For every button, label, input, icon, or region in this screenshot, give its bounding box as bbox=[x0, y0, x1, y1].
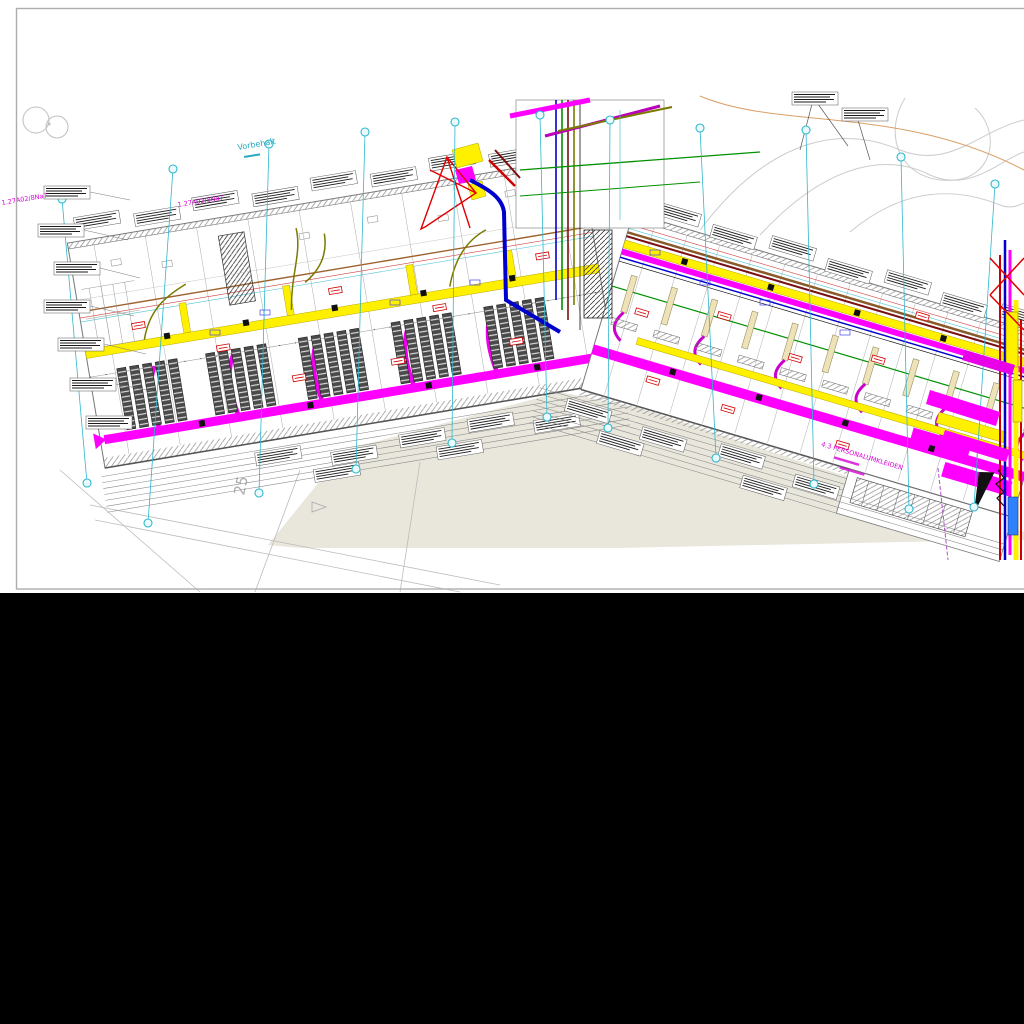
route-tag-label-2: 1.27A02/8Na7 bbox=[1, 191, 48, 207]
site-trees bbox=[23, 107, 68, 138]
floor-plan-drawing: 25 bbox=[0, 0, 1024, 593]
reservation-label: Vorbehalt bbox=[237, 137, 276, 152]
sheet-white-area: 25 bbox=[0, 0, 1024, 593]
letterbox-black-area bbox=[0, 593, 1024, 1024]
